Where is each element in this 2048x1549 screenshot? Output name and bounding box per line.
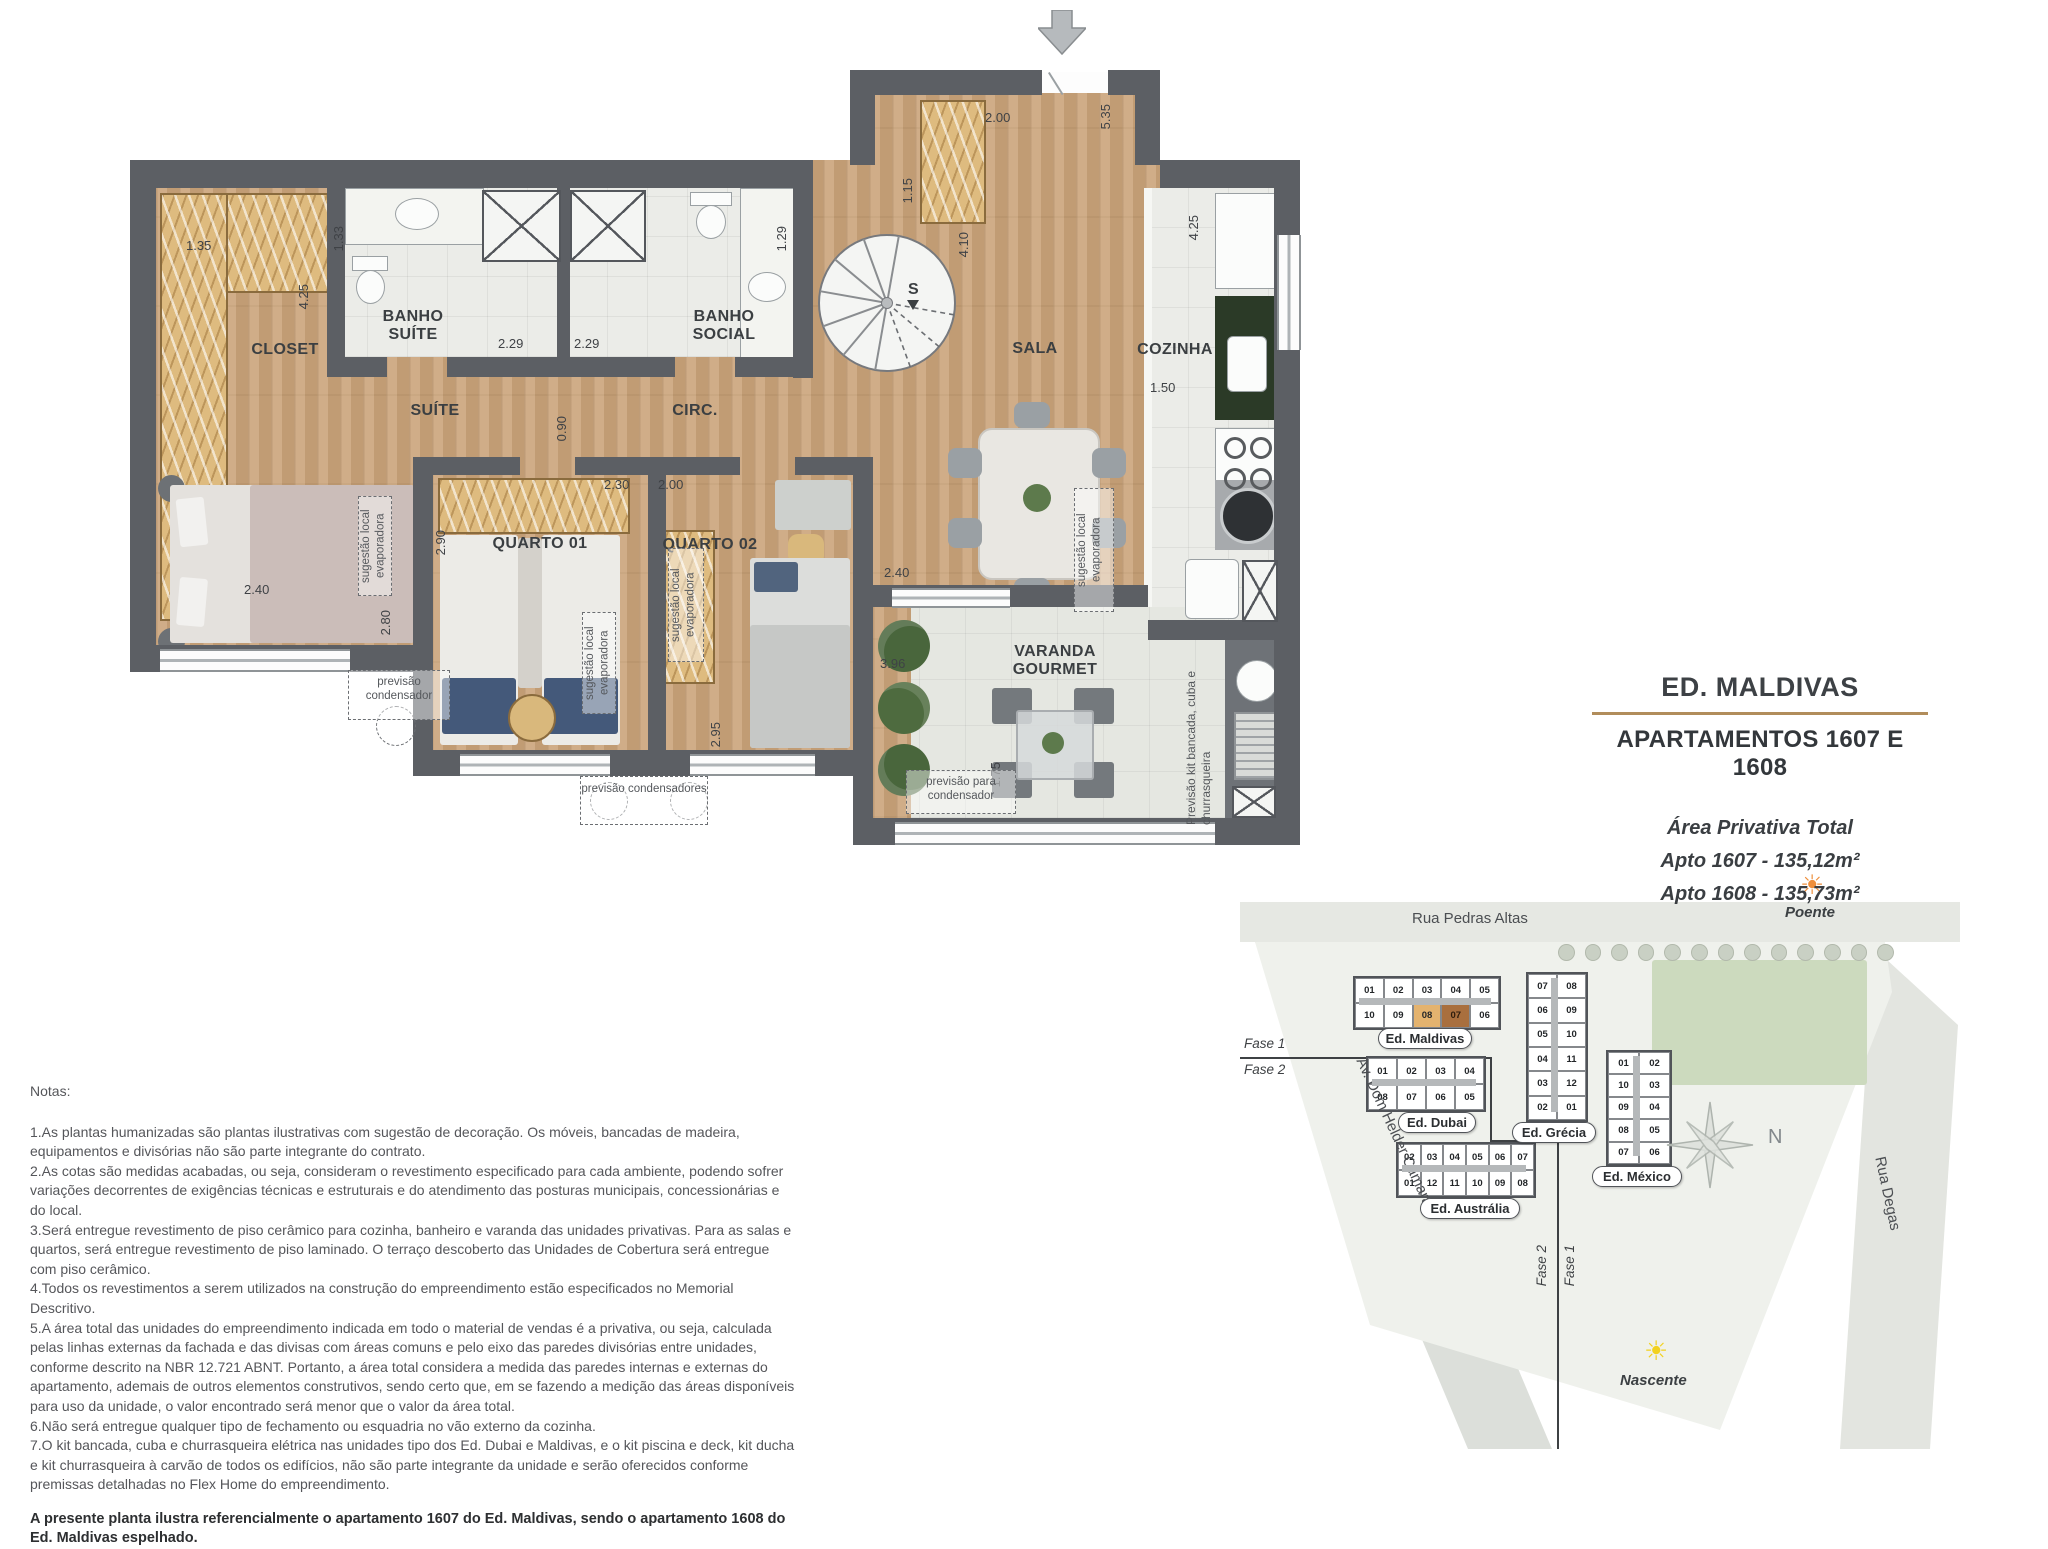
building-corridor bbox=[1372, 1079, 1476, 1086]
dim: 4.10 bbox=[956, 232, 971, 257]
shaft bbox=[482, 190, 561, 262]
window bbox=[1277, 235, 1301, 350]
exterior-mask bbox=[1160, 90, 1274, 160]
room-label-cozinha: COZINHA bbox=[1125, 341, 1225, 359]
unit-cell: 09 bbox=[1384, 1003, 1413, 1028]
dim: 2.29 bbox=[574, 336, 599, 351]
annotation-evaporadora: sugestão local evaporadora bbox=[1074, 488, 1114, 612]
annotation-condensadores: previsão condensadores bbox=[580, 776, 708, 825]
entry-arrow-icon bbox=[1038, 10, 1086, 56]
building-label-mexico: Ed. México bbox=[1592, 1166, 1682, 1187]
laundry-tank bbox=[1185, 559, 1239, 619]
unit-cell: 10 bbox=[1466, 1170, 1489, 1196]
tree-row bbox=[1558, 944, 1894, 961]
wall bbox=[1135, 70, 1160, 165]
window bbox=[160, 649, 350, 672]
phase-label: Fase 2 bbox=[1534, 1245, 1549, 1286]
unit-cell: 06 bbox=[1426, 1084, 1455, 1110]
building-corridor bbox=[1402, 1165, 1526, 1172]
chair bbox=[948, 448, 982, 478]
phase-label: Fase 1 bbox=[1562, 1245, 1577, 1286]
unit-cell: 07 bbox=[1397, 1084, 1426, 1110]
title-block: ED. MALDIVAS APARTAMENTOS 1607 E 1608 Ár… bbox=[1592, 672, 1928, 911]
pillow bbox=[176, 577, 208, 627]
burner bbox=[1250, 468, 1272, 490]
window bbox=[690, 754, 815, 776]
wall bbox=[575, 457, 740, 475]
dim: 5.35 bbox=[1098, 104, 1113, 129]
dim: 1.33 bbox=[331, 226, 346, 251]
unit-cell-highlight-08: 08 bbox=[1413, 1003, 1442, 1028]
room-label-suite: SUÍTE bbox=[390, 402, 480, 420]
dim: 2.00 bbox=[985, 110, 1010, 125]
chair bbox=[1092, 448, 1126, 478]
wall bbox=[853, 475, 873, 845]
spiral-stair: S bbox=[812, 228, 962, 378]
wall bbox=[130, 160, 813, 188]
phase-label: Fase 2 bbox=[1244, 1062, 1285, 1077]
bbq-sink bbox=[1236, 660, 1278, 702]
wall bbox=[447, 357, 675, 377]
burner bbox=[1224, 468, 1246, 490]
window bbox=[460, 754, 610, 776]
sun-east-label: Nascente bbox=[1620, 1372, 1687, 1389]
sink bbox=[395, 198, 439, 230]
washer bbox=[1220, 488, 1276, 544]
compass-north-label: N bbox=[1768, 1126, 1782, 1149]
wall bbox=[413, 475, 433, 776]
dim: 1.15 bbox=[900, 178, 915, 203]
dim: 2.29 bbox=[498, 336, 523, 351]
notes-heading: Notas: bbox=[30, 1082, 798, 1102]
unit-cell-highlight-07: 07 bbox=[1441, 1003, 1470, 1028]
toilet bbox=[356, 270, 385, 304]
sliding-door bbox=[892, 588, 1010, 608]
bookshelf bbox=[438, 478, 630, 534]
wall bbox=[648, 475, 666, 755]
building-title: ED. MALDIVAS bbox=[1592, 672, 1928, 703]
dim: 1.35 bbox=[186, 238, 211, 253]
dim: 4.25 bbox=[296, 284, 311, 309]
burner bbox=[1224, 437, 1246, 459]
dim: 3.96 bbox=[880, 656, 905, 671]
dim: 4.25 bbox=[1186, 215, 1201, 240]
dim: 1.29 bbox=[774, 226, 789, 251]
building-label-dubai: Ed. Dubai bbox=[1398, 1112, 1476, 1133]
shaft bbox=[570, 190, 646, 262]
building-corridor bbox=[1633, 1056, 1640, 1156]
wall bbox=[795, 457, 873, 475]
wall bbox=[130, 160, 156, 646]
annotation-evaporadora: sugestão local evaporadora bbox=[358, 496, 392, 596]
pillow bbox=[176, 497, 209, 548]
building-corridor bbox=[1551, 978, 1558, 1112]
site-plan: Rua Pedras Altas Av. Dom Helder Câmara R… bbox=[1240, 860, 2048, 1449]
room-label-circ: CIRC. bbox=[650, 402, 740, 420]
unit-cell: 10 bbox=[1557, 1023, 1586, 1047]
toilet-tank bbox=[352, 256, 388, 271]
phase-line bbox=[1490, 1057, 1492, 1140]
unit-cell: 08 bbox=[1557, 974, 1586, 998]
fridge bbox=[1215, 193, 1275, 289]
unit-cell: 12 bbox=[1557, 1071, 1586, 1095]
note-item: 6.Não será entregue qualquer tipo de fec… bbox=[30, 1417, 798, 1437]
building-label-grecia: Ed. Grécia bbox=[1512, 1122, 1596, 1143]
grill bbox=[1234, 712, 1276, 780]
annotation-condensador: previsão condensador bbox=[348, 670, 450, 720]
unit-cell: 05 bbox=[1455, 1084, 1484, 1110]
dim: 2.40 bbox=[884, 565, 909, 580]
table-plant bbox=[1023, 484, 1051, 512]
building-label-maldivas: Ed. Maldivas bbox=[1378, 1028, 1472, 1049]
shaft bbox=[1242, 560, 1278, 622]
unit-cell: 10 bbox=[1355, 1003, 1384, 1028]
annotation-kit-bancada: Previsão kit bancada, cuba e churrasquei… bbox=[1184, 645, 1220, 825]
building-label-australia: Ed. Austrália bbox=[1420, 1198, 1520, 1219]
dim: 2.90 bbox=[433, 530, 448, 555]
stair-direction-label: S bbox=[908, 281, 919, 298]
note-item: 5.A área total das unidades do empreendi… bbox=[30, 1319, 798, 1417]
kitchen-sink bbox=[1227, 336, 1267, 392]
shaft bbox=[1232, 786, 1276, 818]
pillow-blue bbox=[754, 562, 798, 592]
dim: 1.50 bbox=[1150, 380, 1175, 395]
burner bbox=[1250, 437, 1272, 459]
area-apto-1608: Apto 1608 - 135,73m² bbox=[1592, 878, 1928, 911]
unit-cell: 08 bbox=[1511, 1170, 1534, 1196]
note-item: 2.As cotas são medidas acabadas, ou seja… bbox=[30, 1162, 798, 1221]
room-label-quarto1: QUARTO 01 bbox=[475, 535, 605, 553]
note-item: 7.O kit bancada, cuba e churrasqueira el… bbox=[30, 1436, 798, 1495]
rug-runner bbox=[518, 538, 542, 688]
unit-cell: 03 bbox=[1639, 1074, 1670, 1096]
dim: 0.90 bbox=[554, 416, 569, 441]
balcony-rail bbox=[895, 822, 1215, 845]
room-label-closet: CLOSET bbox=[225, 341, 345, 359]
annotation-para-condensador: previsão para condensador bbox=[906, 770, 1016, 814]
annotation-evaporadora: sugestão local evaporadora bbox=[582, 612, 616, 714]
wall bbox=[735, 357, 793, 377]
chair bbox=[1014, 402, 1050, 428]
entry-cabinet bbox=[920, 100, 986, 224]
note-item: 4.Todos os revestimentos a serem utiliza… bbox=[30, 1279, 798, 1318]
toilet bbox=[696, 205, 726, 239]
apartments-subtitle: APARTAMENTOS 1607 E 1608 bbox=[1592, 726, 1928, 782]
plant bbox=[878, 682, 930, 734]
sun-east-icon: ☀ bbox=[1644, 1338, 1668, 1365]
phase-line bbox=[1557, 1140, 1559, 1449]
street-label-top: Rua Pedras Altas bbox=[1412, 910, 1528, 927]
unit-cell: 11 bbox=[1557, 1047, 1586, 1071]
notes-block: Notas: 1.As plantas humanizadas são plan… bbox=[30, 1082, 798, 1549]
dim: 2.30 bbox=[604, 477, 629, 492]
wall bbox=[413, 457, 520, 475]
table-plant bbox=[1042, 732, 1064, 754]
lawn bbox=[1652, 960, 1867, 1085]
note-item: 3.Será entregue revestimento de piso cer… bbox=[30, 1221, 798, 1280]
wall bbox=[793, 188, 813, 378]
wall bbox=[327, 357, 387, 377]
note-item: 1.As plantas humanizadas são plantas ilu… bbox=[30, 1123, 798, 1162]
dim: 2.00 bbox=[658, 477, 683, 492]
room-label-varanda: VARANDA GOURMET bbox=[990, 643, 1120, 680]
room-label-banho-social: BANHO SOCIAL bbox=[669, 308, 779, 345]
area-heading: Área Privativa Total bbox=[1592, 812, 1928, 845]
sink bbox=[748, 272, 786, 302]
wall bbox=[1148, 620, 1274, 640]
area-apto-1607: Apto 1607 - 135,12m² bbox=[1592, 845, 1928, 878]
room-label-sala: SALA bbox=[985, 340, 1085, 358]
unit-cell: 09 bbox=[1489, 1170, 1512, 1196]
notes-footer: A presente planta ilustra referencialmen… bbox=[30, 1510, 798, 1549]
unit-cell: 01 bbox=[1557, 1096, 1586, 1120]
pillow-blue bbox=[442, 678, 516, 734]
unit-cell: 02 bbox=[1639, 1052, 1670, 1074]
dim: 2.40 bbox=[244, 582, 269, 597]
side-table bbox=[508, 694, 556, 742]
unit-cell: 06 bbox=[1470, 1003, 1499, 1028]
dim: 2.95 bbox=[708, 722, 723, 747]
chair bbox=[948, 518, 982, 548]
dim: 2.80 bbox=[378, 610, 393, 635]
phase-label: Fase 1 bbox=[1244, 1036, 1285, 1051]
wall bbox=[850, 70, 1042, 95]
desk bbox=[775, 480, 851, 530]
unit-cell: 09 bbox=[1557, 998, 1586, 1022]
accent-rule bbox=[1592, 712, 1928, 715]
toilet-tank bbox=[690, 192, 732, 206]
kitchen-threshold bbox=[1144, 188, 1152, 608]
blanket bbox=[750, 625, 850, 748]
wall bbox=[327, 188, 345, 357]
unit-cell: 11 bbox=[1443, 1170, 1466, 1196]
annotation-evaporadora: sugestão local evaporadora bbox=[668, 548, 704, 662]
floor-plan: S CLOSET BANHO SUÍTE BANHO SOCIAL SUÍTE … bbox=[130, 60, 1300, 860]
room-label-banho-suite: BANHO SUÍTE bbox=[363, 308, 463, 345]
exterior-mask bbox=[156, 90, 850, 160]
building-corridor bbox=[1359, 998, 1491, 1005]
wall bbox=[1160, 160, 1300, 188]
